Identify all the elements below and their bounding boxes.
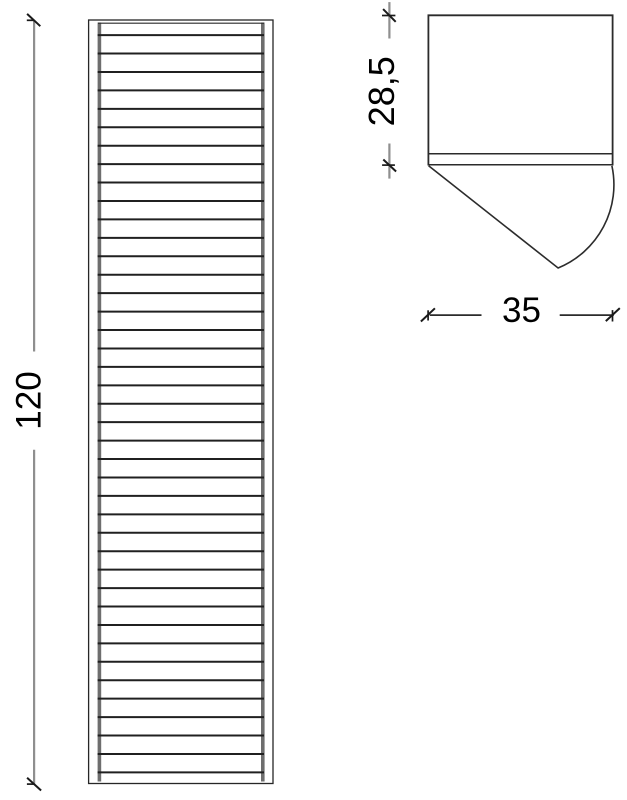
- svg-text:120: 120: [10, 371, 49, 429]
- svg-text:35: 35: [502, 291, 541, 330]
- svg-text:28,5: 28,5: [361, 56, 402, 126]
